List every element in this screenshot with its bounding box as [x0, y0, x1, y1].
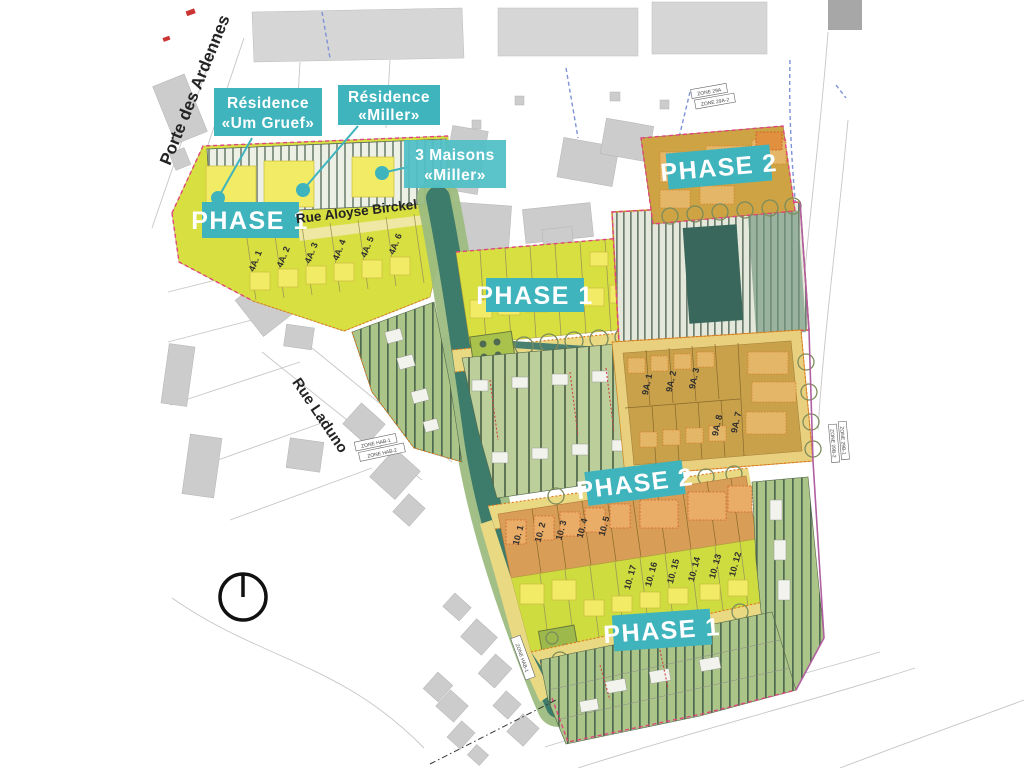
phase-badge-center-phase1: PHASE 1: [476, 278, 593, 312]
miller-line2: «Miller»: [358, 107, 420, 124]
zone-label-pair-top: ZONE 29A ZONE 29A-2: [691, 82, 736, 109]
site-plan-svg: Résidence «Um Gruef» Résidence «Miller» …: [0, 0, 1024, 768]
label-residence-miller: Résidence «Miller»: [338, 85, 440, 125]
zone-label-6: ZONE 29B-1: [838, 426, 846, 455]
miller-line1: Résidence: [348, 89, 430, 106]
label-residence-um-gruef: Résidence «Um Gruef»: [214, 88, 322, 136]
phase1-nw-text: PHASE 1: [191, 207, 308, 235]
site-plan-page: Résidence «Um Gruef» Résidence «Miller» …: [0, 0, 1024, 768]
label-3-maisons-miller: 3 Maisons «Miller»: [404, 140, 506, 188]
north-indicator-icon: [220, 574, 266, 620]
maisons-miller-line2: «Miller»: [424, 167, 486, 184]
zone-label-7: ZONE 29B-2: [828, 429, 836, 458]
parcel-9a: [612, 330, 821, 476]
phase1-center-text: PHASE 1: [476, 282, 593, 310]
parcel-right-top-rows: [612, 202, 809, 343]
um-gruef-line1: Résidence: [227, 95, 309, 112]
um-gruef-line2: «Um Gruef»: [222, 115, 315, 132]
zone-label-pair-right: ZONE 29B-1 ZONE 29B-2: [828, 421, 850, 462]
maisons-miller-line1: 3 Maisons: [415, 147, 494, 164]
phase-badge-nw-phase1: PHASE 1: [191, 202, 308, 238]
